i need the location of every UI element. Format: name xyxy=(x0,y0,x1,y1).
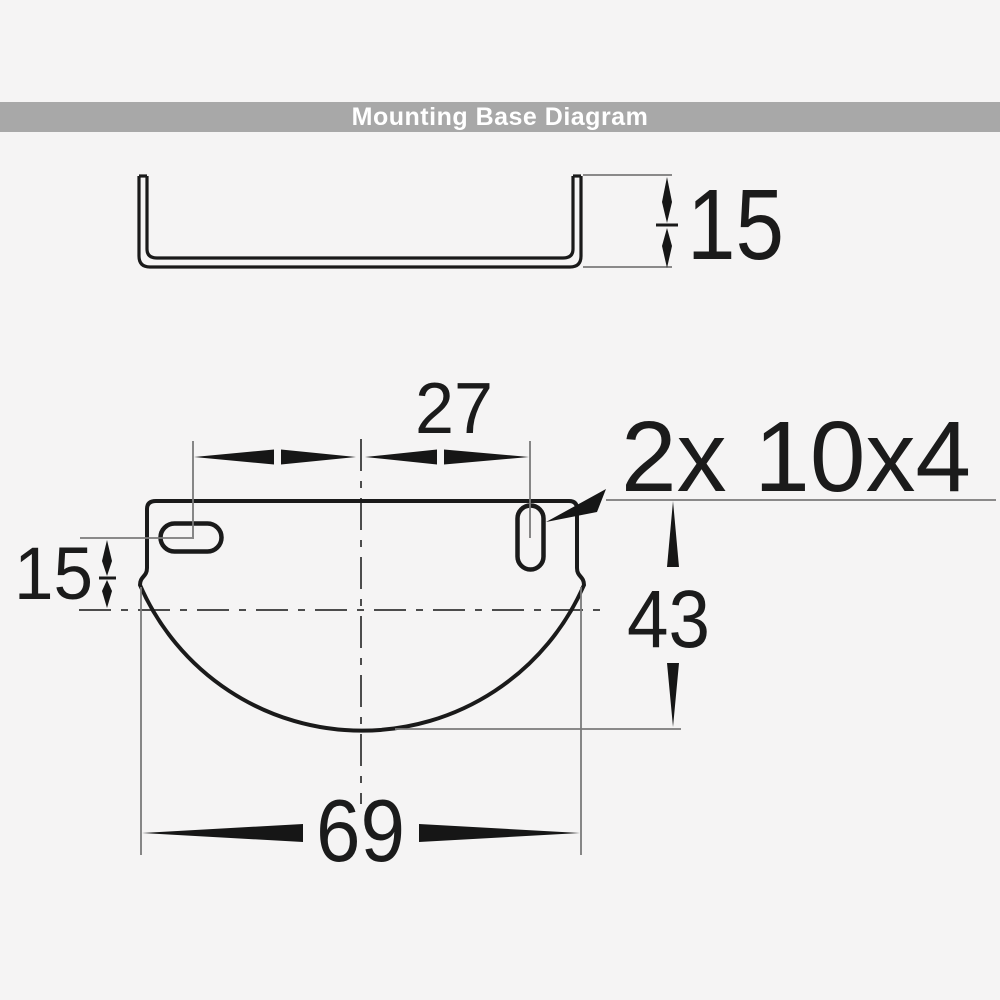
dimension-arrow-left-outer xyxy=(194,450,274,465)
slot-spacing-label: 27 xyxy=(415,369,493,449)
dimension-arrow-up xyxy=(662,177,672,223)
center-depth-label: 43 xyxy=(627,574,710,665)
dimension-center-depth: 43 xyxy=(395,501,710,729)
channel-inner-surface xyxy=(147,176,573,258)
overall-width-label: 69 xyxy=(316,781,405,880)
dimension-arrow-down xyxy=(662,228,672,268)
dimension-arrow-down xyxy=(667,663,679,727)
dimension-arrow-left xyxy=(142,824,303,842)
dimension-arrow-right-inner xyxy=(365,450,437,465)
dimension-arrow-down xyxy=(102,580,112,608)
dimension-arrow-right xyxy=(419,824,580,842)
technical-drawing: 15 27 2x 10x4 xyxy=(0,0,1000,1000)
dimension-side-height: 15 xyxy=(583,169,784,281)
mounting-base-diagram-page: Mounting Base Diagram 15 xyxy=(0,0,1000,1000)
side-view-profile xyxy=(139,176,581,267)
channel-outer-surface xyxy=(139,176,581,267)
dimension-slot-offset: 15 xyxy=(14,532,192,615)
slot-offset-label: 15 xyxy=(14,532,93,615)
dimension-arrow-up xyxy=(102,540,112,576)
callout-slot-size: 2x 10x4 xyxy=(546,401,996,522)
dimension-arrow-left-inner xyxy=(281,450,356,465)
slot-size-label: 2x 10x4 xyxy=(621,401,971,513)
front-view-plate xyxy=(79,439,606,804)
side-height-label: 15 xyxy=(687,169,784,281)
dimension-arrow-right-outer xyxy=(444,450,529,465)
